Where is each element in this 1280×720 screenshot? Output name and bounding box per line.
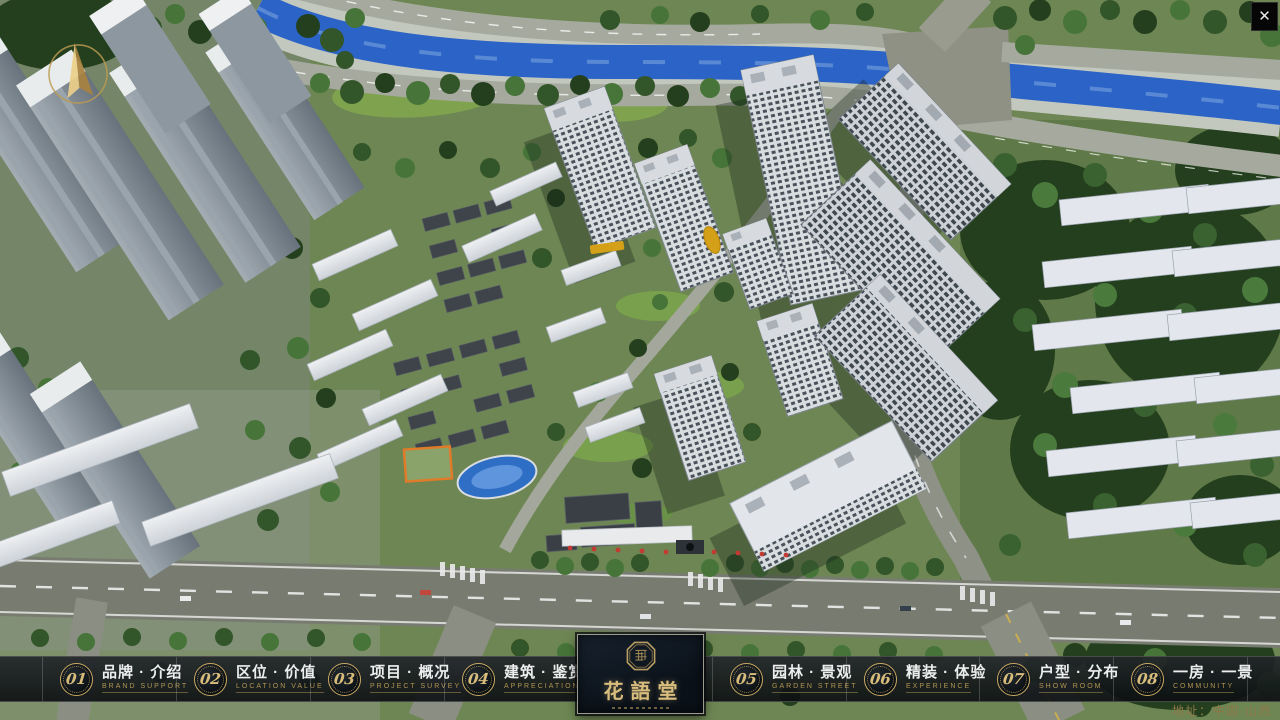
nav-sublabel: GARDEN STREET bbox=[772, 683, 858, 693]
seal-emblem-icon bbox=[625, 640, 657, 672]
item-number-badge: 08 bbox=[1131, 663, 1164, 696]
nav-sublabel: EXPERIENCE bbox=[906, 683, 971, 693]
nav-item-garden[interactable]: 05 园林 · 景观GARDEN STREET bbox=[712, 657, 846, 701]
nav-sublabel: COMMUNITY bbox=[1173, 683, 1234, 693]
item-number-badge: 04 bbox=[462, 663, 495, 696]
nav-label: 精装 · 体验 bbox=[906, 665, 986, 680]
nav-label: 建筑 · 鉴赏 bbox=[504, 665, 584, 680]
nav-item-location[interactable]: 02 区位 · 价值LOCATION VALUE bbox=[176, 657, 310, 701]
item-number-badge: 07 bbox=[997, 663, 1030, 696]
nav-item-brand[interactable]: 01 品牌 · 介绍BRAND SUPPORT bbox=[42, 657, 176, 701]
nav-divider bbox=[1247, 657, 1248, 701]
nav-item-interior[interactable]: 06 精装 · 体验EXPERIENCE bbox=[846, 657, 980, 701]
item-number-badge: 06 bbox=[864, 663, 897, 696]
item-number-badge: 03 bbox=[328, 663, 361, 696]
project-logo: 花語堂 bbox=[577, 634, 704, 714]
item-number-badge: 05 bbox=[730, 663, 763, 696]
nav-item-floorplan[interactable]: 07 户型 · 分布SHOW ROOM bbox=[979, 657, 1113, 701]
nav-sublabel: APPRECIATION bbox=[504, 683, 580, 693]
logo-name: 花語堂 bbox=[597, 675, 685, 704]
address-text: 地址：中国·山西 bbox=[1172, 702, 1272, 719]
nav-label: 园林 · 景观 bbox=[772, 665, 858, 680]
compass-icon bbox=[38, 32, 118, 115]
nav-label: 户型 · 分布 bbox=[1039, 665, 1119, 680]
nav-item-architecture[interactable]: 04 建筑 · 鉴赏APPRECIATION bbox=[444, 657, 578, 701]
nav-label: 一房 · 一景 bbox=[1173, 665, 1253, 680]
site-aerial-view[interactable] bbox=[0, 0, 1280, 720]
nav-item-project[interactable]: 03 项目 · 概况PROJECT SURVEY bbox=[310, 657, 444, 701]
item-number-badge: 02 bbox=[194, 663, 227, 696]
logo-subtext bbox=[612, 707, 670, 709]
item-number-badge: 01 bbox=[60, 663, 93, 696]
close-button[interactable]: ✕ bbox=[1251, 2, 1278, 31]
nav-sublabel: SHOW ROOM bbox=[1039, 683, 1103, 693]
app-window: ✕ 01 品牌 · 介绍BRAND SUPPORT 02 区位 · 价值LOCA… bbox=[0, 0, 1280, 720]
nav-item-views[interactable]: 08 一房 · 一景COMMUNITY bbox=[1113, 657, 1247, 701]
